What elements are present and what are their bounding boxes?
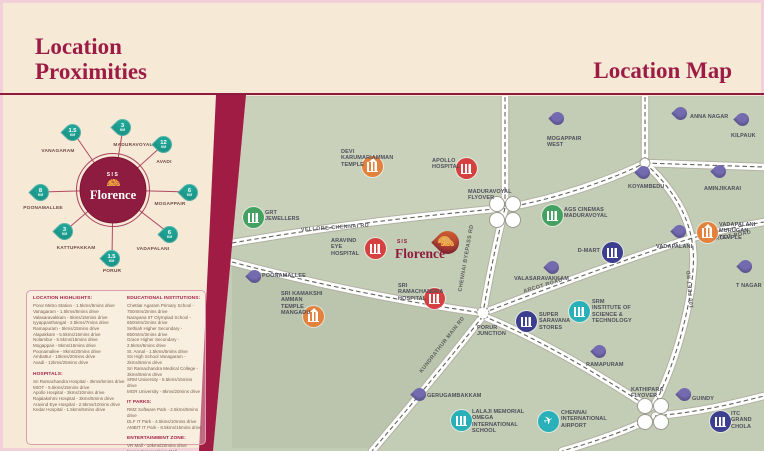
spoke-label-avadi: AVADI	[148, 160, 180, 165]
list-item: Porur Metro Station - 1.5kms/5mins drive	[33, 303, 125, 309]
list-item: SRM University - 5.5kms/15mins drive	[127, 377, 203, 388]
poi-d-mart: D-MART	[572, 248, 600, 254]
cinema-icon	[542, 205, 563, 226]
list-title-hospitals: HOSPITALS:	[33, 372, 125, 378]
list-item: Chettiar Agaram Primary School - 750mtrs…	[127, 303, 203, 314]
building-glyph	[461, 164, 472, 174]
page-title-line2: Proximities	[35, 59, 147, 84]
poi-aravind-eye-hospital: ARAVIND EYE HOSPITAL	[331, 238, 369, 257]
list-item: Sethiah Higher Secondary - 850mtrs/3mins…	[127, 326, 203, 337]
poi-anna-nagar: ANNA NAGAR	[690, 114, 738, 120]
poi-gerugambakkam: GERUGAMBAKKAM	[427, 393, 483, 399]
building-glyph	[607, 248, 618, 258]
poi-valasaravakkam: VALASARAVAKKAM	[514, 276, 564, 282]
distance-pin-vadapalani: 6KM	[157, 222, 181, 246]
poi-lalaji-omega-school: LALAJI MEMORIAL OMEGA INTERNATIONAL SCHO…	[472, 409, 532, 435]
list-item: SS High School Vanagaram - 2kms/5mins dr…	[127, 354, 203, 365]
airport-icon: ✈	[538, 411, 559, 432]
building-glyph	[702, 228, 713, 238]
porur-junction-circle	[477, 307, 489, 319]
spoke-label-vanagaram: VANAGARAM	[40, 149, 76, 154]
poi-vadapalani: VADAPALANI	[656, 244, 696, 250]
poi-ags-cinemas: AGS CINEMAS MADURAVOYAL	[564, 207, 604, 220]
distance-pin-avadi: 12KM	[151, 132, 175, 156]
institute-icon	[569, 301, 590, 322]
list-item: Rajalakshmi Hospital - 3kms/5mins drive	[33, 396, 125, 402]
poi-devi-karumariamman-temple: DEVI KARUMARIAMMAN TEMPLE	[341, 149, 397, 168]
poi-poonamallee: POONAMALLEE	[262, 273, 312, 279]
airplane-glyph: ✈	[542, 415, 554, 428]
store-icon	[602, 242, 623, 263]
brand-sis: SIS	[81, 172, 145, 178]
list-item: Narayana IIT Olympiad School - 650mtrs/2…	[127, 315, 203, 326]
poi-apollo-hospital: APOLLO HOSPITAL	[432, 158, 462, 171]
building-glyph	[521, 317, 532, 327]
building-glyph	[248, 213, 259, 223]
list-item: Kedar Hospital - 1.5kms/5mins drive	[33, 407, 125, 413]
distance-pin-porur: 1.5KM	[99, 246, 123, 270]
building-glyph	[370, 244, 381, 254]
spoke-label-poonamallee: POONAMALLEE	[21, 206, 65, 211]
poi-sri-kamakshi-amman-temple: SRI KAMAKSHI AMMAN TEMPLE MANGADU	[281, 291, 323, 317]
poi-srm-institute: SRM INSTITUTE OF SCIENCE & TECHNOLOGY	[592, 299, 634, 325]
poi-kilpauk: KILPAUK	[731, 133, 761, 139]
distance-pin-maduravoyal: 3KM	[110, 115, 134, 139]
page-title-line1: Location	[35, 34, 147, 59]
spoke-label-porur: PORUR	[96, 269, 128, 274]
building-glyph	[574, 307, 585, 317]
building-glyph	[456, 416, 467, 426]
poi-mogappair-west: MOGAPPAIR WEST	[547, 136, 581, 149]
list-item: Sri Ramachandra Hospital - 3kms/5mins dr…	[33, 379, 125, 385]
store-icon	[516, 311, 537, 332]
spoke-label-kattupakkam: KATTUPAKKAM	[54, 246, 98, 251]
distance-pin-vanagaram: 1.5KM	[60, 120, 84, 144]
list-item: MGR University - 8kms/20mins drive	[127, 389, 203, 395]
spoke-label-mogappair: MOGAPPAIR	[152, 202, 188, 207]
spoke-label-maduravoyal: MADURAVOYAL	[111, 143, 155, 148]
list-item: Sri Ramachandra Medical College - 3kms/5…	[127, 366, 203, 377]
list-item: DLF IT Park - 4.5kms/10mins drive	[127, 419, 203, 425]
fan-icon	[438, 236, 451, 243]
distance-pin-kattupakkam: 3KM	[52, 219, 76, 243]
building-glyph	[547, 211, 558, 221]
poi-itc-grand-chola: ITC GRAND CHOLA	[731, 411, 757, 430]
list-item: Grace Higher Secondary - 2.5kms/5mins dr…	[127, 337, 203, 348]
poi-vadapalani-murugan-temple: VADAPALANI MURUGAN TEMPLE	[719, 222, 763, 241]
poi-aminjikarai: AMINJIKARAI	[704, 186, 744, 192]
distance-pin-mogappair: 6KM	[177, 180, 201, 204]
poi-kathipara-flyover: KATHIPARA FLYOVER	[631, 387, 665, 400]
poi-koyambedu: KOYAMBEDU	[628, 184, 668, 190]
map-title: Location Map	[593, 58, 732, 84]
page-title: Location Proximities	[35, 34, 147, 84]
list-item: RMZ Software Park - 2.5kms/5mins drive	[127, 407, 203, 418]
list-column-left: LOCATION HIGHLIGHTS: Porur Metro Station…	[33, 296, 125, 413]
poi-t-nagar: T NAGAR	[736, 283, 764, 289]
hotel-icon	[710, 411, 731, 432]
sis-florence-logo: SIS Florence	[81, 172, 145, 204]
list-title-entertainment: ENTERTAINMENT ZONE:	[127, 436, 203, 442]
list-title-educational: EDUCATIONAL INSTITUTIONS:	[127, 296, 203, 302]
poi-super-saravana-stores: SUPER SARAVANA STORES	[539, 312, 569, 331]
brand-name: Florence	[395, 246, 445, 261]
brand-name: Florence	[90, 188, 136, 202]
spoke-label-vadapalani: VADAPALANI	[133, 247, 173, 252]
fan-icon	[107, 179, 120, 186]
list-title-it-parks: IT PARKS:	[127, 400, 203, 406]
sis-florence-map-logo: SIS Florence	[395, 239, 457, 263]
list-item: AMBIT IT Park - 8.5kms/15mins drive	[127, 425, 203, 431]
jewellers-icon	[243, 207, 264, 228]
list-title-location-highlights: LOCATION HIGHLIGHTS:	[33, 296, 125, 302]
temple-icon	[697, 222, 718, 243]
brochure-page: VELLORE-CHENNAI RD CHENNAI BYEPASS RD AR…	[0, 0, 764, 451]
distance-pin-poonamallee: 8KM	[28, 180, 52, 204]
list-item: Avadi - 12kms/25mins drive	[33, 360, 125, 366]
poi-ramapuram: RAMAPURAM	[586, 362, 626, 368]
poi-maduravoyal-flyover: MADURAVOYAL FLYOVER	[468, 189, 508, 202]
poi-grt-jewellers: GRT JEWELLERS	[265, 210, 299, 223]
building-glyph	[715, 417, 726, 427]
poi-porur-junction: PORUR JUNCTION	[477, 325, 507, 338]
list-column-right: EDUCATIONAL INSTITUTIONS: Chettiar Agara…	[127, 296, 203, 451]
school-icon	[451, 410, 472, 431]
poi-guindy: GUINDY	[692, 396, 722, 402]
poi-sri-ramachandra-hospital: SRI RAMACHANDRA HOSPITAL	[398, 283, 446, 302]
poi-chennai-airport: CHENNAI INTERNATIONAL AIRPORT	[561, 410, 605, 429]
